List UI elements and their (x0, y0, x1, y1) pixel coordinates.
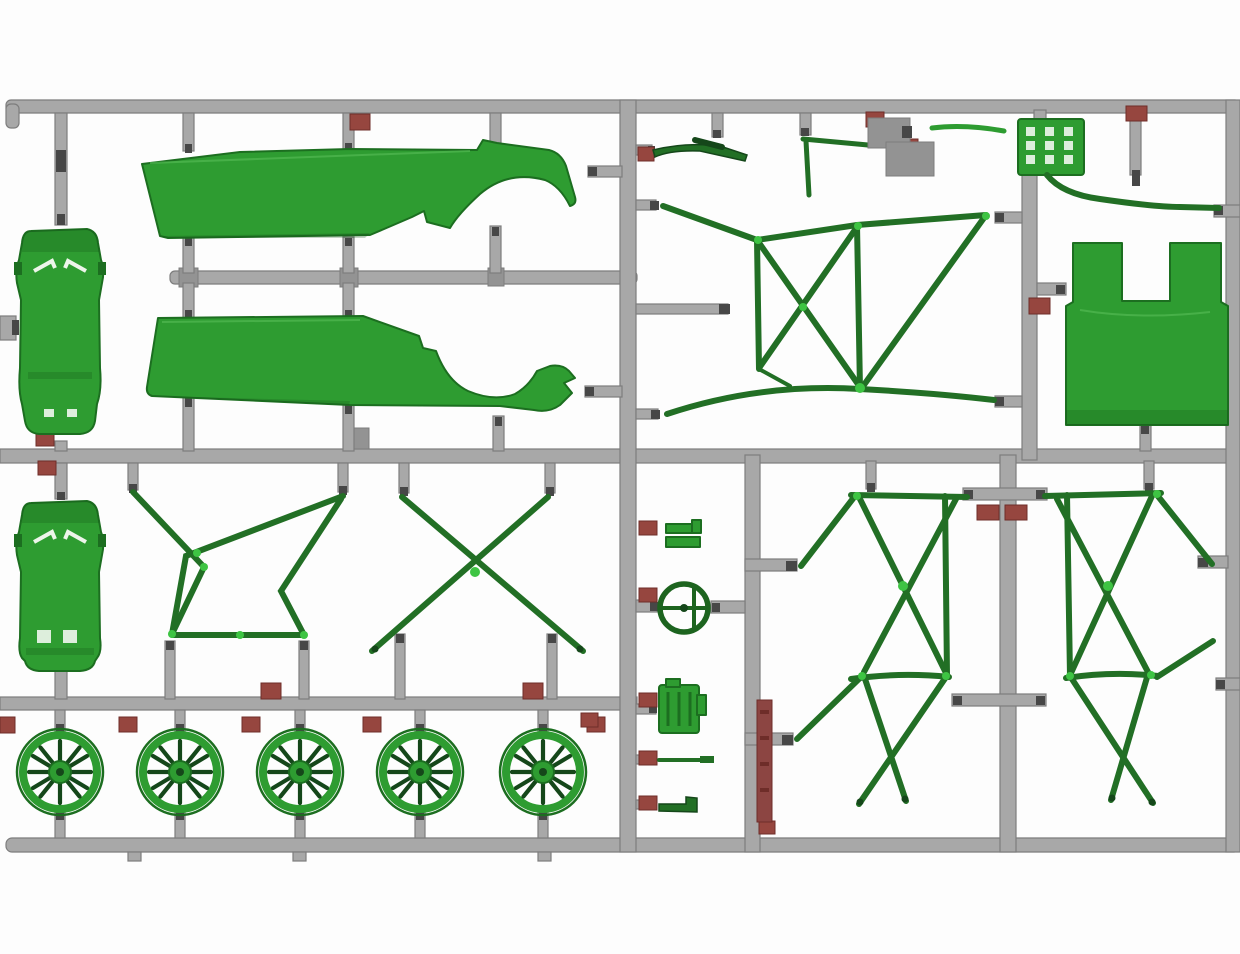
wheel-part-5 (500, 729, 586, 815)
part-body-side-panel-lower (147, 316, 575, 411)
part-roll-cage-hoop (133, 492, 343, 639)
part-clip (666, 520, 701, 547)
part-bracket-assembly (868, 118, 1004, 176)
sprue-illustration: Photograph of a plastic scale-model kit … (0, 0, 1240, 954)
part-l-bracket (659, 797, 697, 812)
wheel-part-2 (137, 729, 223, 815)
wheel-part-4 (377, 729, 463, 815)
part-x-brace (372, 497, 584, 653)
part-grille (1018, 119, 1084, 175)
wheel-part-1 (17, 729, 103, 815)
sprue-photo: Photograph of a plastic scale-model kit … (0, 0, 1240, 954)
part-car-body-top-1 (14, 229, 106, 434)
part-body-side-panel-upper (142, 140, 575, 238)
wheel-parts (17, 729, 586, 815)
part-car-body-top-2 (14, 501, 106, 671)
part-bulkhead-panel (1066, 243, 1228, 425)
part-cage-frame-left (797, 492, 967, 806)
part-cage-frame-right (1045, 490, 1213, 806)
part-wiper-arm (653, 140, 747, 161)
part-linkage-rod (659, 756, 714, 763)
part-engine-block (659, 679, 706, 733)
wheel-part-3 (257, 729, 343, 815)
marking-strip (757, 700, 772, 822)
part-t-rod (803, 139, 868, 195)
part-steering-wheel (660, 584, 708, 632)
